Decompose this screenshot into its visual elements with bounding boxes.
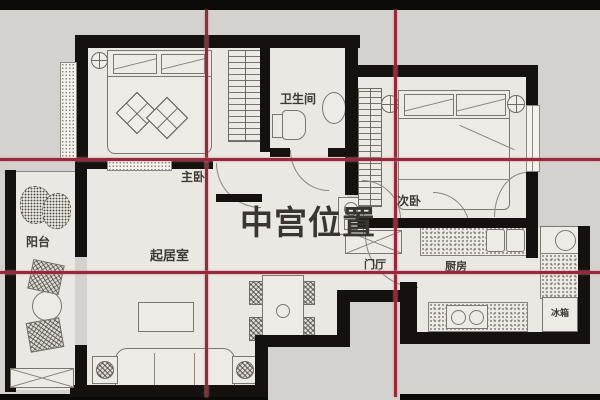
wall-bedroom2-right-a <box>526 65 538 105</box>
bedroom2-pillow-right <box>456 94 506 116</box>
bathroom-sink-icon <box>322 92 346 124</box>
red-grid-line-horizontal-1 <box>0 158 600 161</box>
counter-right-top <box>540 226 580 255</box>
wall-kitchen-right <box>578 226 590 344</box>
bedroom2-pillow-left <box>404 94 454 116</box>
balcony-chair-2 <box>26 317 65 352</box>
bedroom2-lamp-right-icon <box>507 95 525 113</box>
window-master-bottom <box>107 160 172 171</box>
wall-bathroom-bottom-a <box>270 148 290 157</box>
wall-bedroom2-right-b <box>526 170 538 258</box>
red-grid-line-vertical-1 <box>205 10 208 397</box>
room-label-balcony: 阳台 <box>26 236 50 249</box>
room-label-second-bedroom: 次卧 <box>397 195 421 208</box>
fridge: 冰箱 <box>542 297 578 332</box>
room-label-master-bedroom: 主卧 <box>181 171 205 184</box>
wall-bedroom2-top <box>345 65 538 77</box>
wall-bedroom2-bottom <box>358 218 526 228</box>
wall-living-bottom <box>70 385 263 397</box>
wall-living-left-b <box>75 345 87 390</box>
room-label-entry-hall: 门厅 <box>364 259 386 271</box>
sofa-side-table-left <box>92 356 118 384</box>
coffee-table <box>138 302 194 332</box>
outside-patch-1 <box>268 347 350 400</box>
plant-icon-2 <box>42 193 71 229</box>
room-label-living-room: 起居室 <box>150 250 189 264</box>
balcony-top-line <box>16 171 75 172</box>
master-bed-pillow-right <box>161 54 205 74</box>
wall-top <box>75 35 360 48</box>
toilet-bowl-icon <box>282 110 306 140</box>
wall-entry-step-b <box>255 335 350 347</box>
red-grid-line-vertical-2 <box>394 10 397 397</box>
sofa <box>115 348 235 390</box>
window-balcony-bottom <box>10 368 74 388</box>
floor-plan-image: 冰箱 主卧 卫生间 次卧 阳台 起居室 门厅 厨房 中宫位置 <box>0 0 600 400</box>
master-wardrobe <box>228 50 262 142</box>
wall-bathroom-right <box>345 35 358 195</box>
fridge-label: 冰箱 <box>551 310 569 320</box>
wall-balcony-left <box>5 170 16 392</box>
kitchen-sink-basin-1 <box>486 229 505 252</box>
stove-icon <box>446 305 488 329</box>
window-master-left <box>60 62 77 160</box>
wall-kitchen-bottom <box>400 332 590 344</box>
red-grid-line-horizontal-2 <box>0 271 600 274</box>
kitchen-sink-basin-2 <box>506 229 525 252</box>
master-nightstand-lamp-icon <box>91 52 108 69</box>
window-bedroom2-right <box>526 105 540 172</box>
master-bed-pillow-left <box>113 54 157 74</box>
outside-patch-2 <box>350 302 400 400</box>
wall-bathroom-left <box>260 47 270 152</box>
room-label-bathroom: 卫生间 <box>280 93 316 106</box>
top-letterbox-bar <box>0 0 600 10</box>
wall-living-left-a <box>75 160 87 257</box>
center-palace-text: 中宫位置 <box>234 196 382 244</box>
counter-right-column <box>540 253 580 299</box>
balcony-chair-1 <box>27 259 65 295</box>
